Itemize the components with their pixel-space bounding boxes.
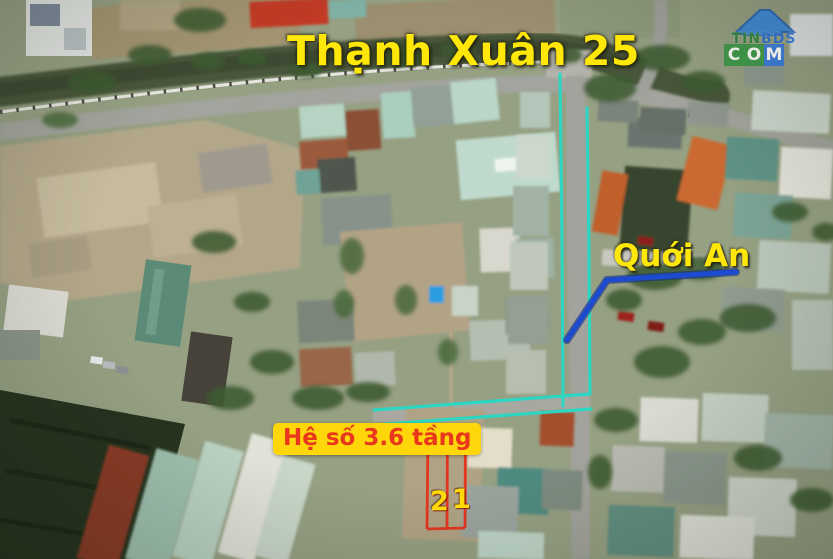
watermark-letter-o: O: [744, 44, 764, 66]
center-dirt-lot: [340, 222, 470, 342]
building-top-left: [26, 0, 92, 56]
blue-tarp: [429, 286, 444, 303]
page-title: Thạnh Xuân 25: [287, 27, 640, 75]
watermark-letter-c: C: [724, 44, 744, 66]
tinbds-watermark: TINBDS COM: [712, 4, 816, 70]
area-label: Quới An: [613, 238, 750, 274]
zoning-label: Hệ số 3.6 tầng: [273, 423, 481, 455]
aerial-scene: [0, 0, 833, 559]
watermark-letter-m: M: [764, 44, 784, 66]
plot-number-2: 2: [430, 486, 449, 517]
plot-number-1: 1: [452, 484, 471, 515]
watermark-com: COM: [724, 44, 784, 66]
aerial-photo-stage: Thạnh Xuân 25 Quới An Hệ số 3.6 tầng 2 1…: [0, 0, 833, 559]
